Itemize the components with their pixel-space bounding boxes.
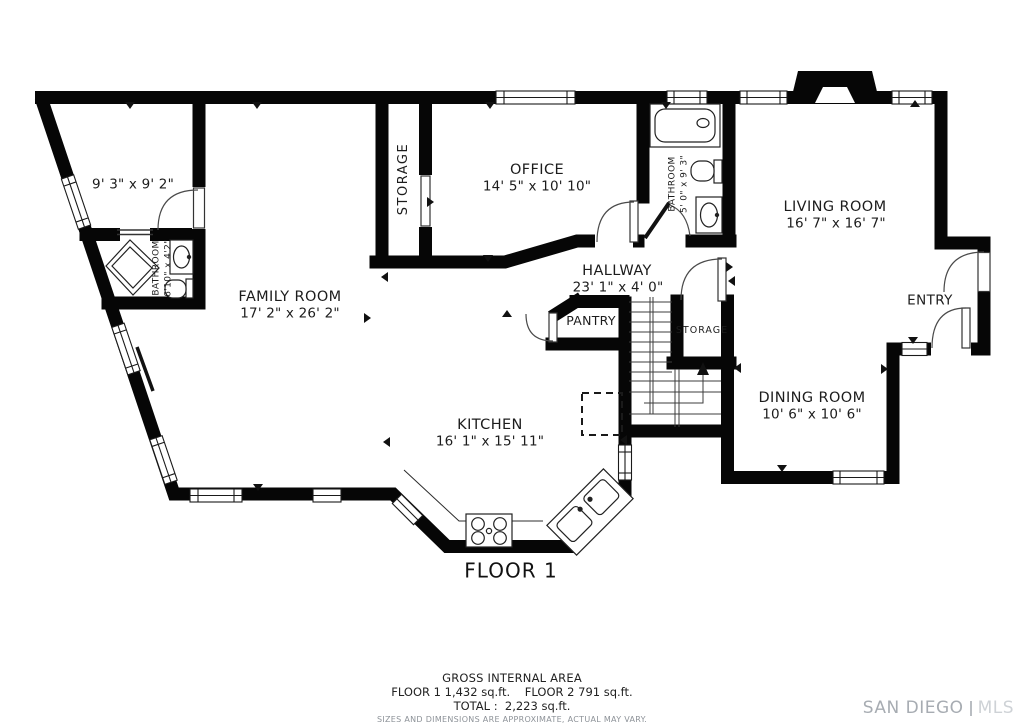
family-room-name: FAMILY ROOM (238, 288, 341, 306)
footer-floor-areas: FLOOR 1 1,432 sq.ft. FLOOR 2 791 sq.ft. (0, 685, 1024, 699)
bathroom-right-name: BATHROOM (667, 155, 679, 213)
window-family-bottom-left (190, 489, 242, 502)
mls-watermark: SAN DIEGO MLS (863, 698, 1014, 718)
window-bath-top (667, 91, 707, 104)
floor-title: FLOOR 1 (464, 559, 557, 584)
watermark-brand: SAN DIEGO (863, 698, 964, 718)
kitchen-counter (404, 470, 543, 521)
floor-plan-page: 9' 3" x 9' 2" BATHROOM 6'10" x 4'2" FAMI… (0, 0, 1024, 724)
storage-tall-name: STORAGE (396, 143, 412, 215)
window-living-left (740, 91, 787, 104)
door-corner-room (158, 188, 205, 230)
stove (466, 514, 512, 547)
office-name: OFFICE (510, 161, 564, 179)
watermark-divider (970, 701, 972, 716)
kitchen-dims: 16' 1" x 15' 11" (436, 434, 544, 451)
window-office-top (496, 91, 575, 104)
bathroom-left-name: BATHROOM (151, 239, 163, 297)
toilet-right-bathroom (691, 160, 722, 183)
dashed-appliance-outline (582, 393, 622, 435)
door-pantry (526, 313, 557, 342)
storage-small-name: STORAGE (676, 325, 728, 337)
window-living-right (892, 91, 932, 104)
door-entry-south (932, 308, 970, 348)
window-diagonal-1 (61, 175, 90, 229)
window-entry-bottom (902, 343, 927, 356)
living-room-name: LIVING ROOM (783, 198, 886, 216)
sink-right-bathroom (696, 197, 722, 233)
bathtub (650, 104, 720, 147)
footer-heading: GROSS INTERNAL AREA (0, 671, 1024, 685)
window-dining-bottom (833, 471, 884, 484)
living-room-dims: 16' 7" x 16' 7" (786, 216, 886, 233)
corner-room-dims: 9' 3" x 9' 2" (92, 177, 174, 194)
watermark-suffix: MLS (978, 698, 1014, 718)
family-room-dims: 17' 2" x 26' 2" (240, 306, 340, 323)
pantry-name: PANTRY (566, 313, 616, 329)
kitchen-name: KITCHEN (457, 416, 523, 434)
window-kitchen-east (619, 445, 632, 480)
entry-name: ENTRY (907, 293, 953, 310)
window-diagonal-3 (150, 436, 177, 485)
dining-room-name: DINING ROOM (758, 389, 865, 407)
door-front-entry (944, 252, 990, 292)
window-family-bottom-right (313, 489, 341, 502)
bathroom-left-dims: 6'10" x 4'2" (163, 239, 175, 297)
bathroom-right-label: BATHROOM 5' 0" x 9' 3" (667, 155, 690, 213)
hallway-dims: 23' 1" x 4' 0" (573, 280, 664, 297)
fireplace (790, 71, 880, 104)
hallway-name: HALLWAY (582, 262, 652, 280)
floor-plan-drawing (0, 0, 1024, 724)
office-dims: 14' 5" x 10' 10" (483, 179, 591, 196)
door-storage-small (681, 258, 726, 301)
bathroom-left-label: BATHROOM 6'10" x 4'2" (151, 239, 174, 297)
dining-room-dims: 10' 6" x 10' 6" (762, 407, 862, 424)
bathroom-right-dims: 5' 0" x 9' 3" (679, 155, 691, 213)
